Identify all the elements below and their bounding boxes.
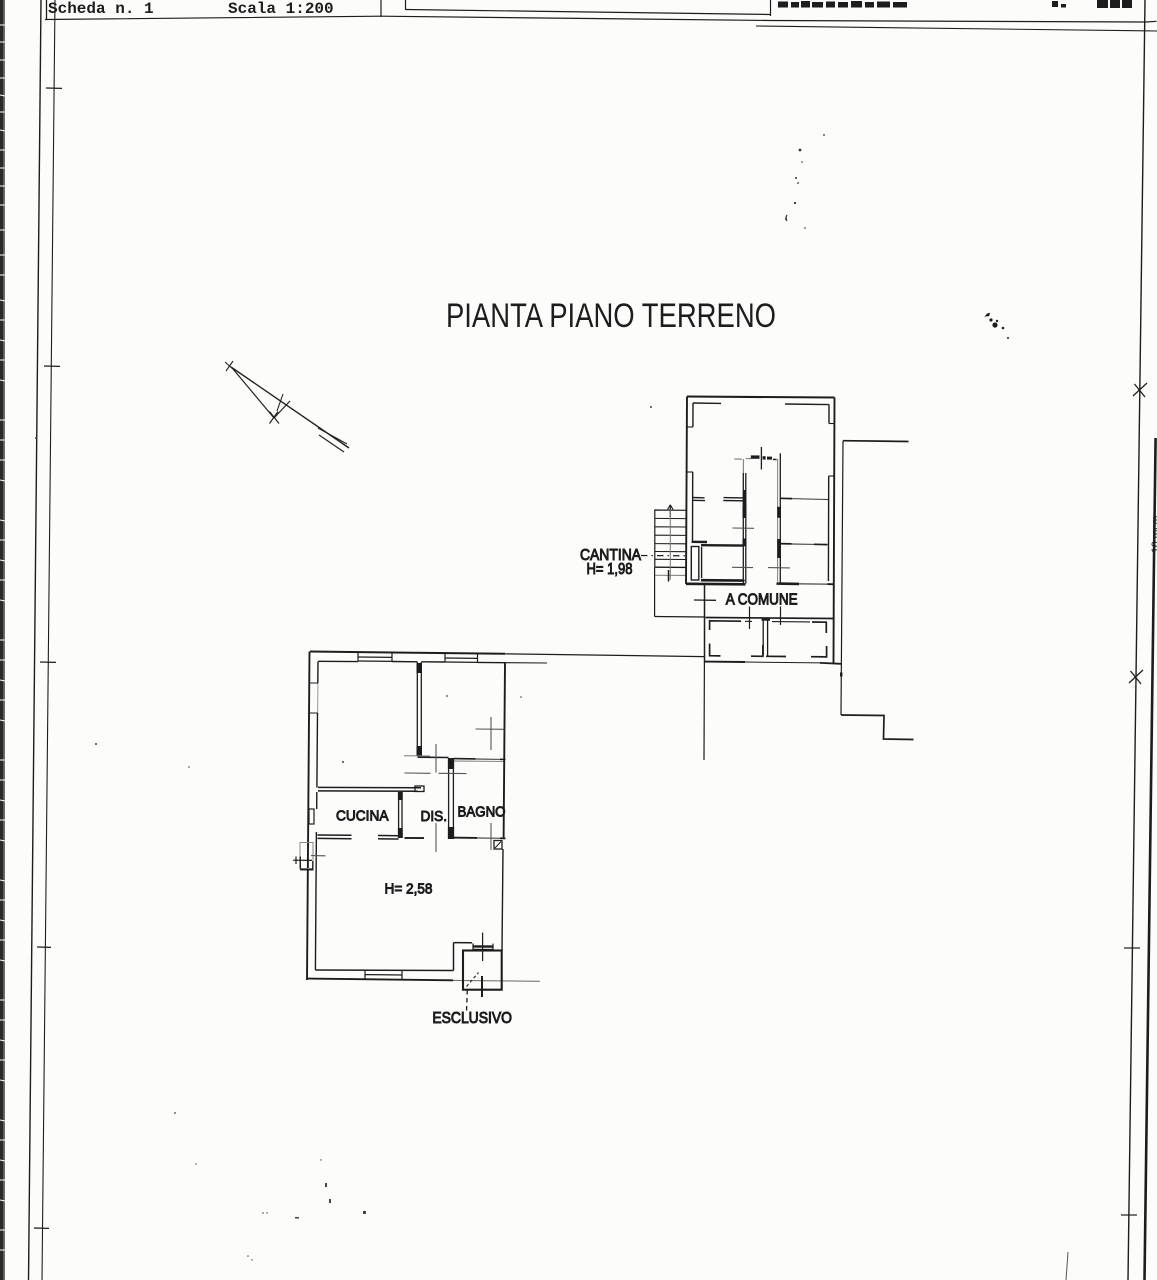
svg-text:H= 1,98: H= 1,98 <box>587 561 633 578</box>
svg-text:Scheda n. 1: Scheda n. 1 <box>48 0 154 18</box>
svg-text:BAGNO: BAGNO <box>458 804 506 821</box>
svg-text:10 mcm: 10 mcm <box>1149 515 1157 553</box>
svg-text:A COMUNE: A COMUNE <box>726 592 798 609</box>
svg-text:DIS.: DIS. <box>421 808 448 825</box>
svg-text:CUCINA: CUCINA <box>336 808 389 825</box>
svg-text:Scala 1:200: Scala 1:200 <box>228 0 334 18</box>
svg-text:H= 2,58: H= 2,58 <box>385 881 433 898</box>
svg-text:PIANTA PIANO TERRENO: PIANTA PIANO TERRENO <box>446 297 776 335</box>
svg-text:ESCLUSIVO: ESCLUSIVO <box>432 1010 512 1027</box>
